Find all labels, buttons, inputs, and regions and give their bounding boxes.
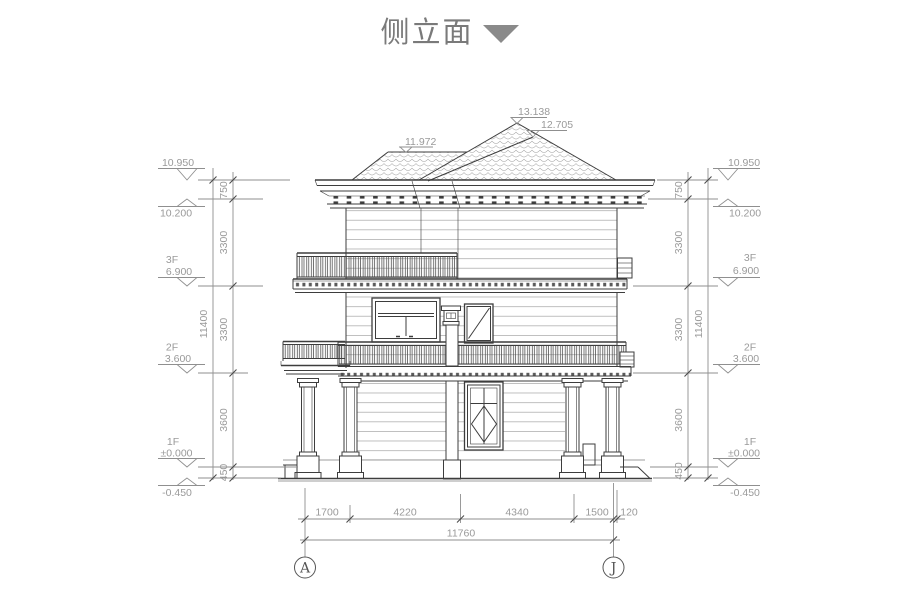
ground	[278, 465, 652, 481]
grid-axis-a: A	[295, 557, 316, 578]
page-title: 侧立面	[380, 16, 519, 49]
dimensions-right: 750 3300 3300 3600 450 11400 10.950 10.2…	[633, 157, 761, 499]
elevation-value: 12.705	[541, 119, 573, 131]
downspout-box-2f	[620, 352, 634, 367]
dim-value: 3300	[218, 231, 230, 255]
elevation-value: 10.200	[729, 208, 761, 220]
floor-label: 1F	[167, 436, 179, 448]
grid-label: J	[609, 561, 617, 577]
dimensions-bottom: 1700 4220 4340 1500 120 11760 A J	[295, 483, 638, 578]
elevation-value: -0.450	[162, 487, 192, 499]
dim-value: 1500	[585, 507, 609, 519]
door-2f	[465, 304, 494, 343]
column-d	[600, 379, 626, 479]
dim-value: 3600	[673, 408, 685, 432]
dim-value: 3300	[218, 318, 230, 342]
window-2f	[372, 298, 440, 342]
eave-cornice	[315, 180, 655, 208]
dim-value: 4220	[393, 507, 417, 519]
elevation-value: 10.200	[160, 208, 192, 220]
dim-value: 3300	[673, 231, 685, 255]
elevation-drawing-page: 侧立面 13.138 12.705 11.972	[0, 0, 910, 612]
dim-overall: 11400	[198, 310, 210, 339]
elevation-value: 6.900	[733, 265, 759, 277]
grid-axis-j: J	[603, 557, 624, 578]
dimensions-left: 750 3300 3300 3600 450 11400 10.950 10.2…	[158, 157, 298, 499]
dim-overall: 11400	[693, 310, 705, 339]
dim-value: 1700	[315, 507, 339, 519]
elevation-value: 13.138	[518, 106, 550, 118]
window-1f	[465, 382, 504, 450]
elevation-value: ±0.000	[160, 448, 192, 460]
elevation-value: 3.600	[733, 353, 759, 365]
elevation-drawing: 侧立面 13.138 12.705 11.972	[0, 0, 910, 612]
title-triangle-icon	[483, 25, 519, 43]
center-pillar-lower	[444, 381, 461, 479]
dim-value: 750	[673, 181, 685, 199]
step-block	[583, 444, 595, 465]
elevation-value: -0.450	[730, 487, 760, 499]
floor-band-2f	[338, 367, 631, 382]
floor-label: 2F	[744, 342, 756, 354]
floor-label: 3F	[166, 254, 178, 266]
roof: 13.138 12.705 11.972	[352, 106, 616, 181]
dentil-band	[329, 196, 645, 204]
third-floor-balcony-railing	[297, 253, 457, 279]
dim-value: 3600	[218, 408, 230, 432]
floor-label: 1F	[744, 436, 756, 448]
elevation-value: 10.950	[728, 157, 760, 169]
elevation-value: 3.600	[165, 353, 191, 365]
elevation-value: 11.972	[405, 136, 436, 148]
dim-value: 450	[673, 462, 685, 480]
center-pillar-upper	[446, 325, 458, 366]
roof-elevation-left-ridge: 11.972	[399, 136, 436, 153]
dim-overall: 11760	[447, 528, 476, 540]
dim-value: 4340	[505, 507, 529, 519]
elevation-value: 6.900	[166, 266, 192, 278]
column-a	[295, 379, 321, 479]
floor-band-3f	[293, 279, 627, 293]
elevation-markers-right: 10.950 10.200 3F 6.900 2F 3.600 1F ±0.00…	[713, 157, 761, 499]
second-floor-balcony-railing	[338, 342, 626, 367]
floor-label: 3F	[744, 252, 756, 264]
center-pillar-capital	[442, 306, 461, 325]
dim-value: 3300	[673, 318, 685, 342]
dim-value: 450	[218, 464, 230, 482]
dim-value: 120	[620, 507, 638, 519]
floor-label: 2F	[166, 342, 178, 354]
grid-label: A	[299, 561, 311, 577]
downspout-box-3f	[618, 258, 633, 278]
title-text: 侧立面	[380, 16, 473, 49]
dim-value: 750	[218, 181, 230, 199]
elevation-value: ±0.000	[728, 448, 760, 460]
elevation-value: 10.950	[162, 157, 194, 169]
